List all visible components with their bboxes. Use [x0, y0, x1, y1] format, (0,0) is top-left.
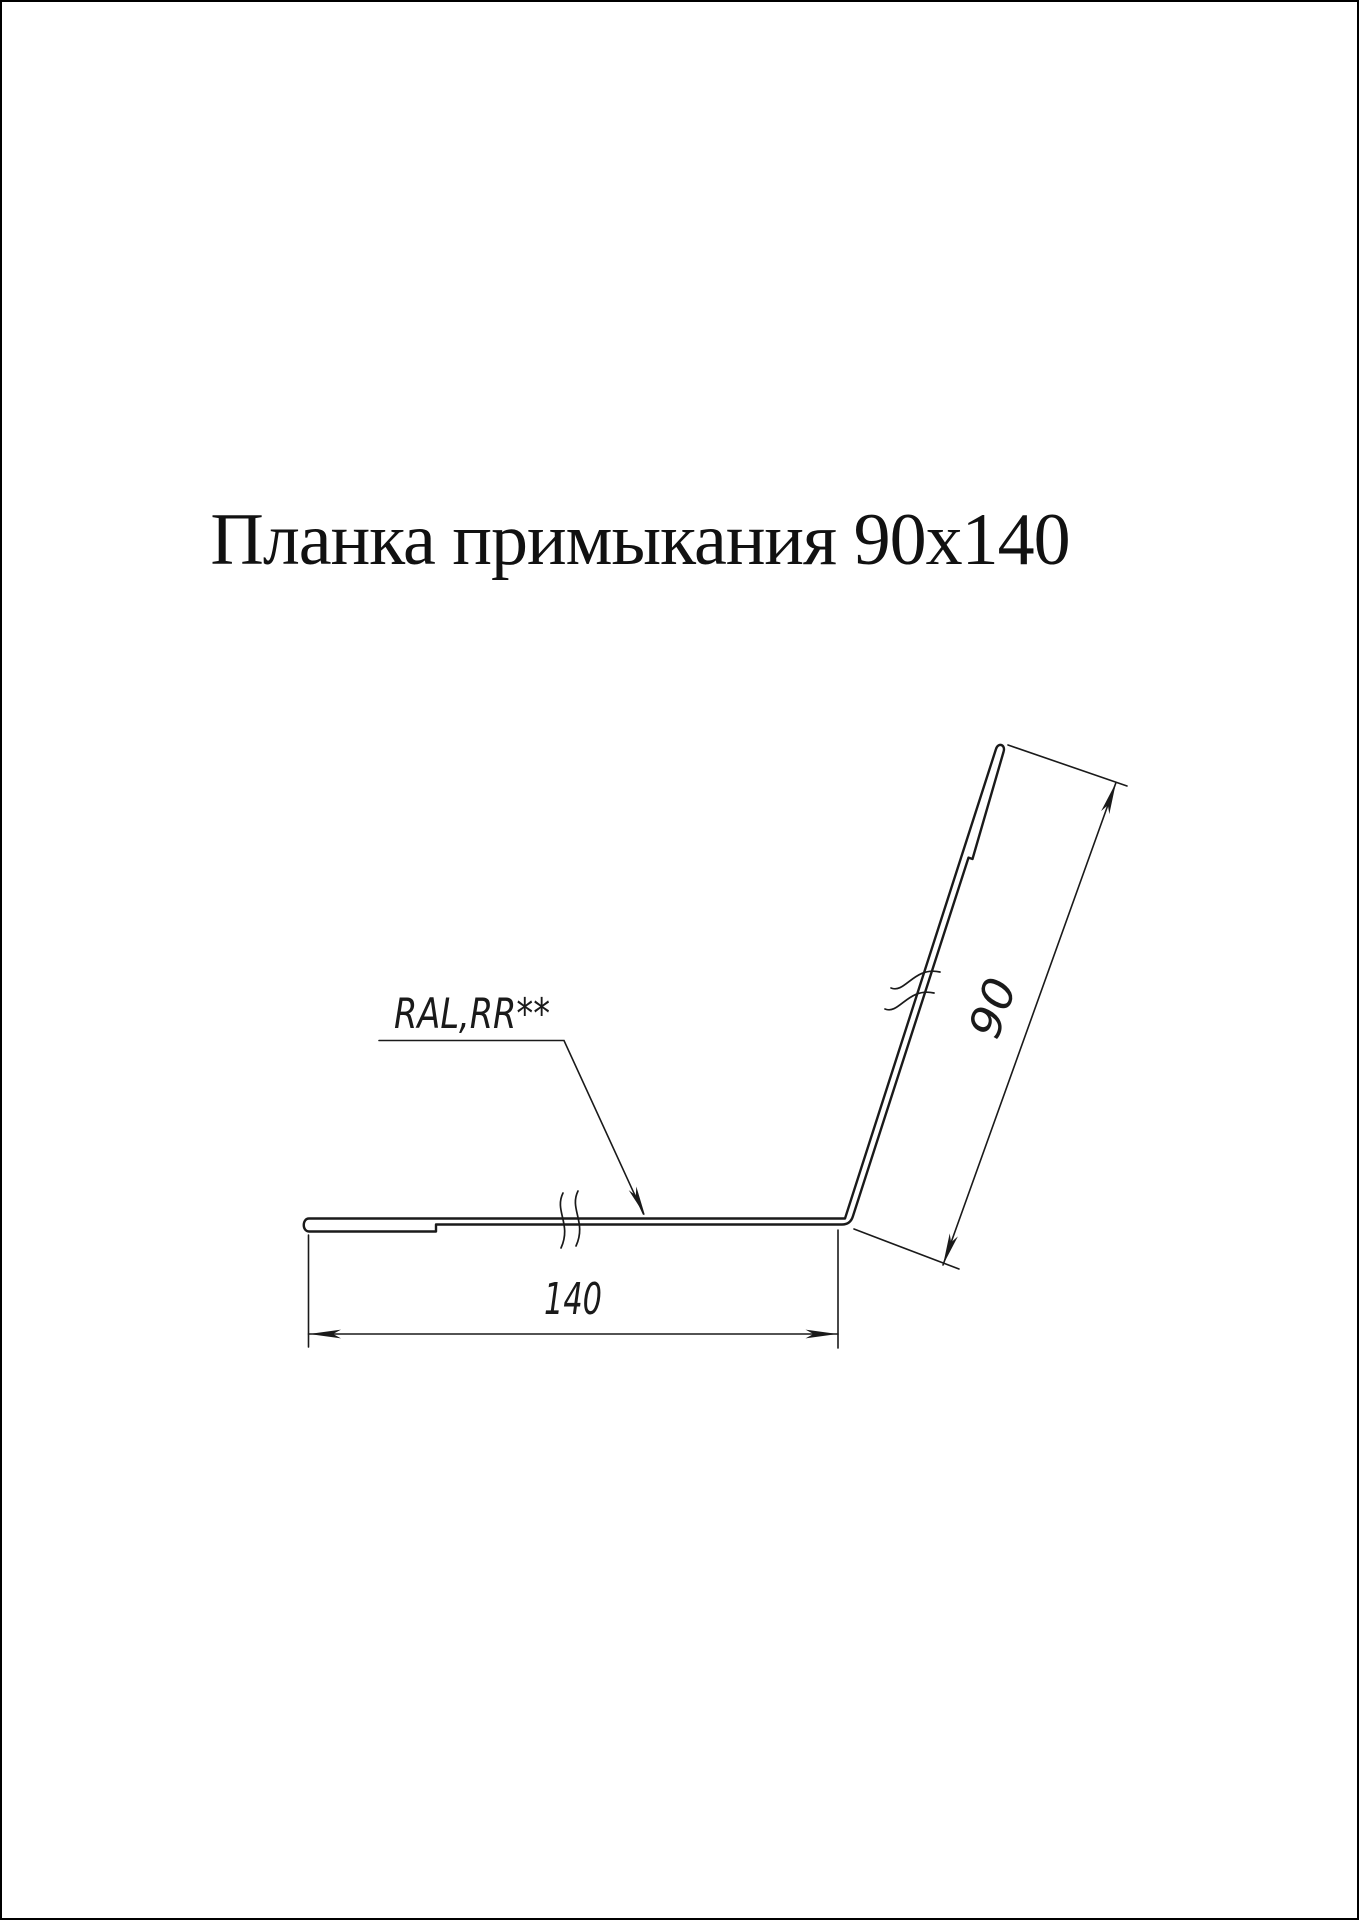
break-mark: [885, 992, 934, 1010]
dimension-width: 140: [309, 1230, 839, 1348]
dimension-height: 90: [854, 745, 1127, 1269]
dimension-height-value: 90: [959, 971, 1027, 1045]
technical-drawing: RAL,RR** 140 90: [2, 2, 1359, 1920]
drawing-sheet: Планка примыкания 90х140 RAL,RR** 140: [0, 0, 1359, 1920]
leader-arrowhead: [629, 1187, 645, 1216]
material-label: RAL,RR**: [394, 989, 550, 1038]
leader-callout: RAL,RR**: [379, 989, 645, 1216]
break-mark: [560, 1193, 564, 1248]
dimension-width-value: 140: [544, 1274, 602, 1325]
dimension-arrowhead: [1101, 783, 1116, 815]
break-mark: [891, 971, 940, 989]
dimension-arrowhead: [943, 1233, 958, 1265]
leader-line: [379, 1041, 644, 1215]
extension-line: [1008, 745, 1127, 786]
